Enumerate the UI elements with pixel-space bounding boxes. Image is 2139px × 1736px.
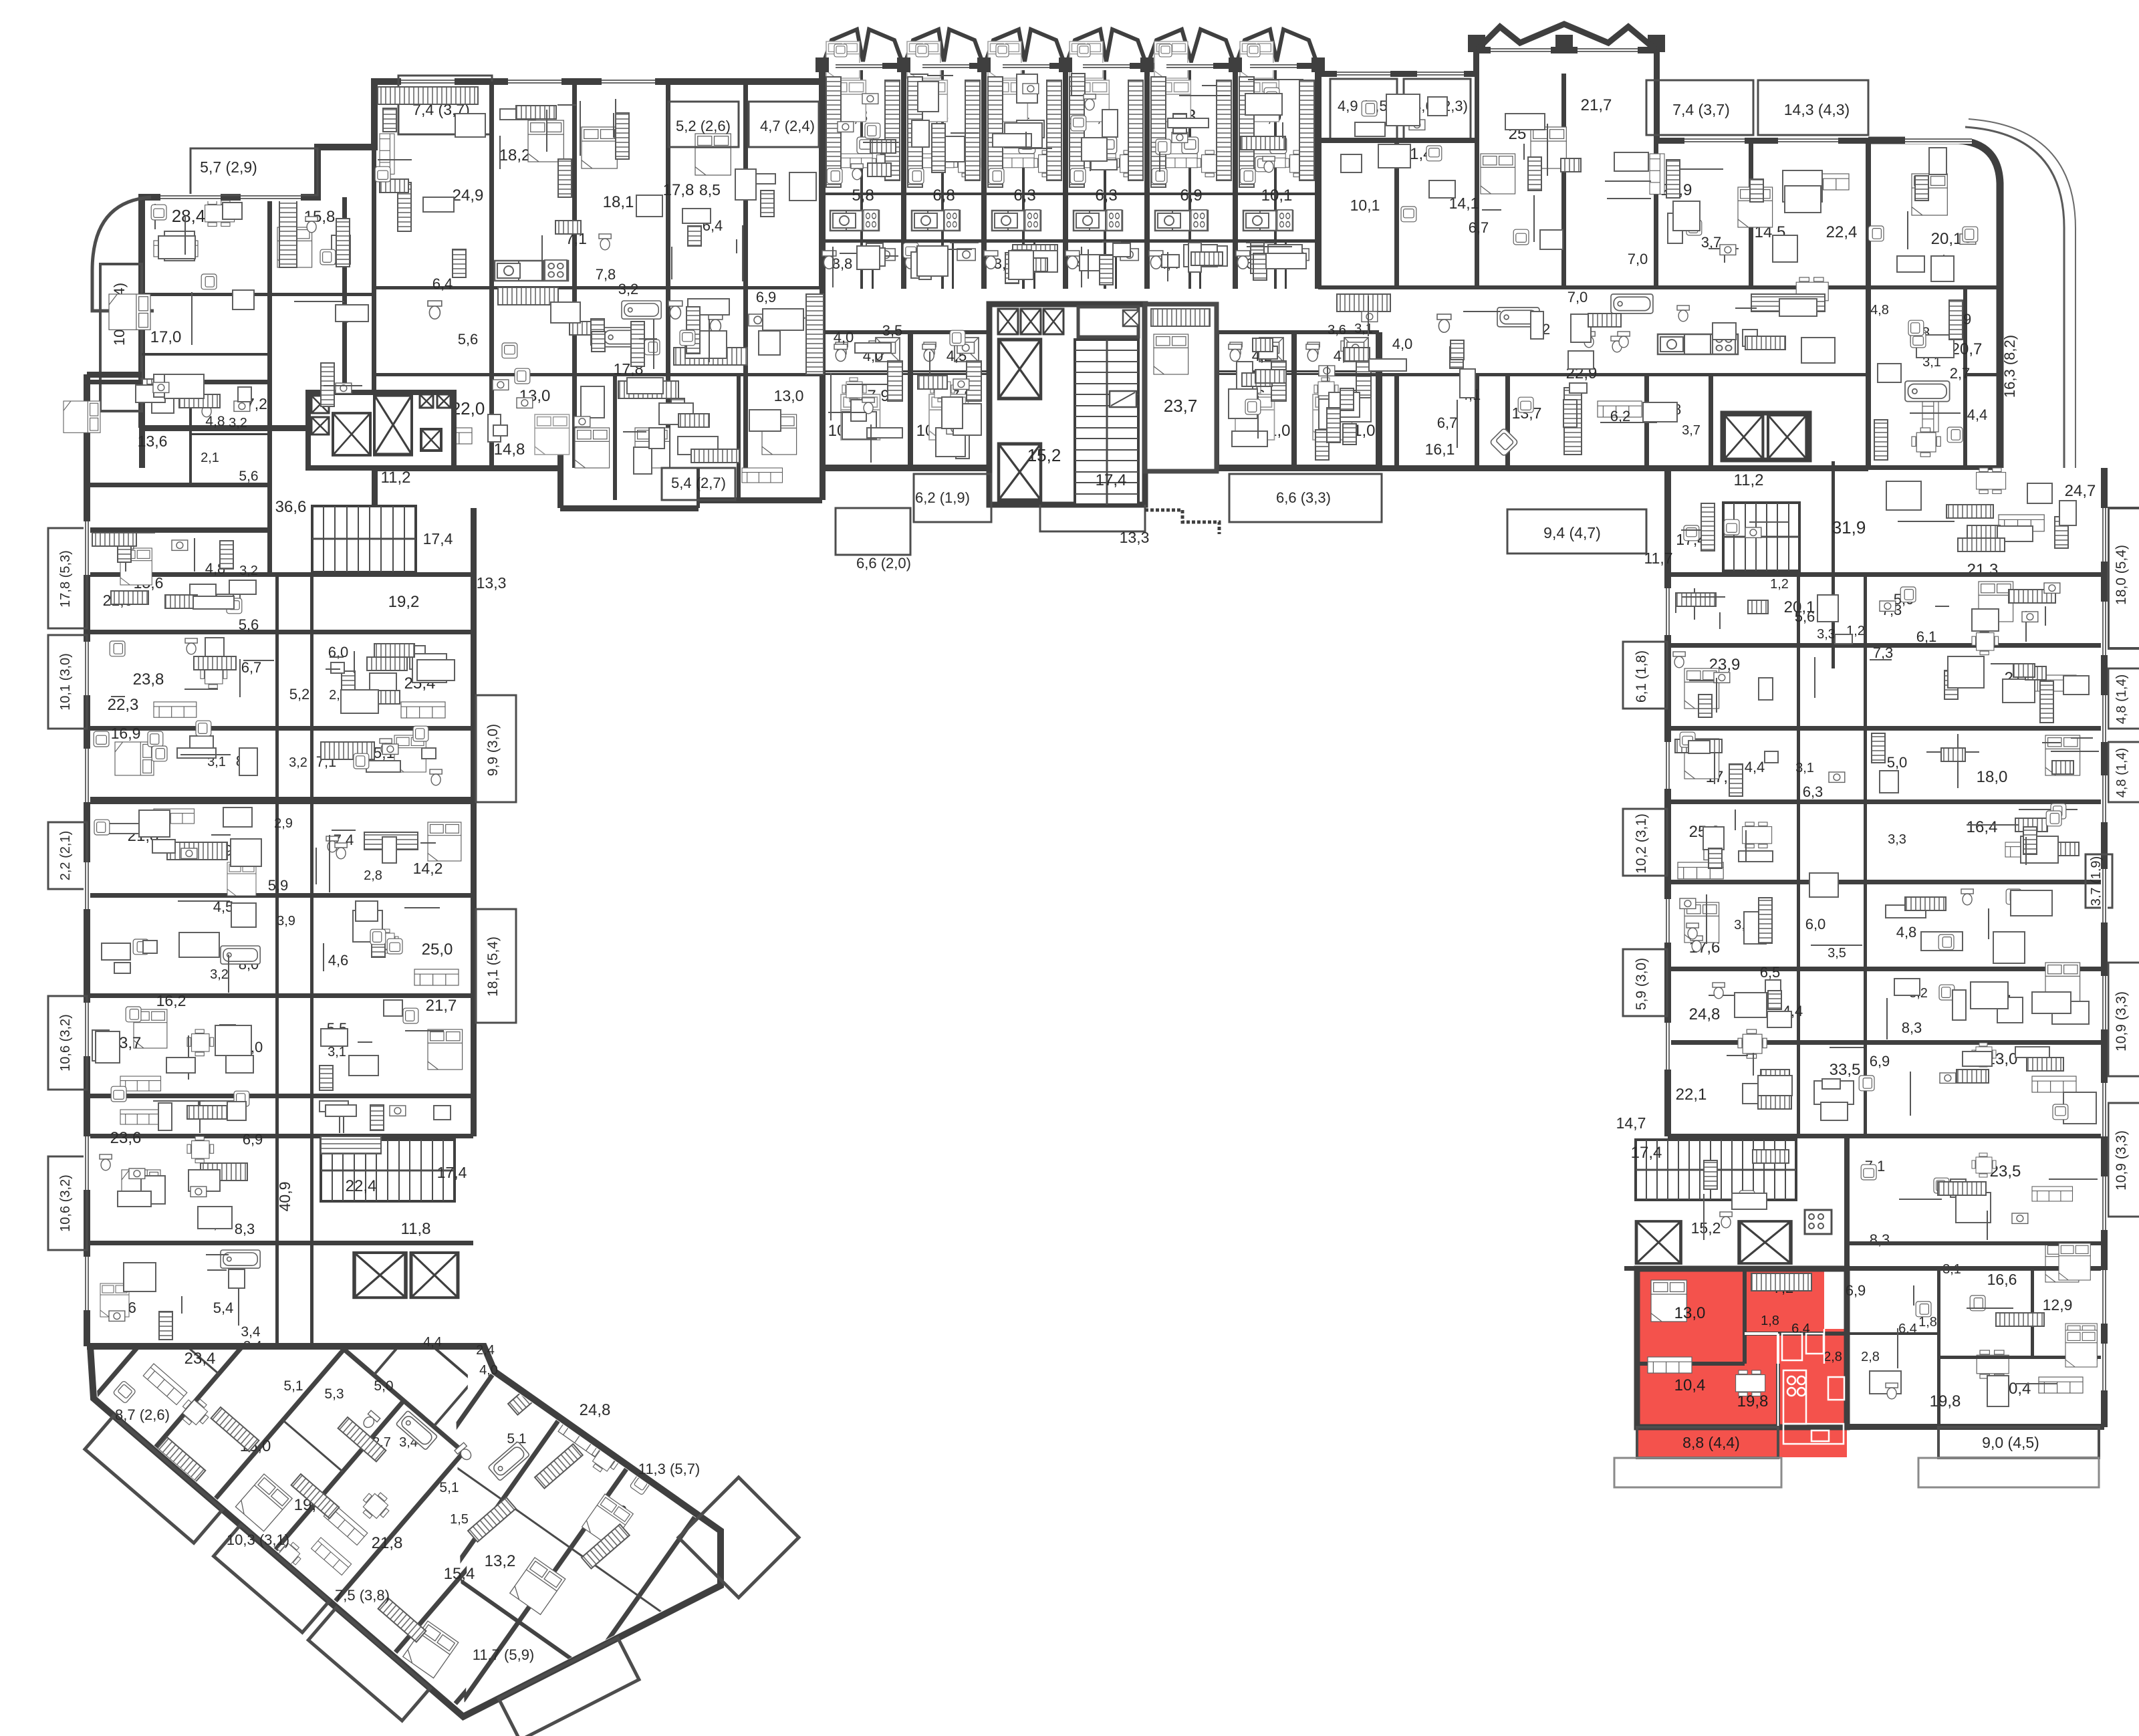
svg-text:16,9: 16,9: [111, 725, 141, 742]
svg-text:3,5: 3,5: [1828, 946, 1846, 961]
svg-text:2,8: 2,8: [364, 868, 382, 883]
svg-text:23,4: 23,4: [184, 1350, 216, 1368]
svg-text:18,1: 18,1: [603, 193, 634, 211]
svg-text:19,2: 19,2: [388, 593, 420, 611]
svg-text:8,3: 8,3: [235, 1221, 255, 1237]
svg-text:4,4: 4,4: [1967, 406, 1988, 423]
svg-text:10,9 (3,3): 10,9 (3,3): [2114, 1130, 2129, 1191]
svg-text:2,4: 2,4: [476, 1343, 495, 1358]
svg-text:3,1: 3,1: [1354, 322, 1373, 336]
svg-text:5,0: 5,0: [1887, 754, 1908, 771]
svg-text:18,0: 18,0: [1977, 768, 2008, 786]
svg-text:6,1 (1,8): 6,1 (1,8): [1634, 650, 1649, 703]
svg-text:19,8: 19,8: [1930, 1392, 1961, 1410]
svg-text:18,0 (5,4): 18,0 (5,4): [2114, 545, 2129, 605]
svg-text:3,7: 3,7: [1682, 423, 1701, 438]
svg-text:16,6: 16,6: [1987, 1271, 2017, 1288]
svg-text:5,9: 5,9: [268, 877, 289, 894]
svg-text:13,3: 13,3: [477, 574, 507, 592]
svg-text:7,5 (3,8): 7,5 (3,8): [335, 1587, 390, 1604]
svg-text:5,7 (2,9): 5,7 (2,9): [200, 158, 257, 176]
svg-text:10,1: 10,1: [1350, 197, 1380, 214]
svg-text:7,0: 7,0: [1628, 251, 1648, 267]
svg-text:24,7: 24,7: [2065, 482, 2096, 500]
svg-text:6,2 (1,9): 6,2 (1,9): [915, 489, 970, 506]
svg-text:6,3: 6,3: [1095, 187, 1117, 205]
svg-text:13,2: 13,2: [485, 1552, 516, 1570]
svg-text:7,0: 7,0: [1567, 289, 1588, 305]
svg-text:10,4: 10,4: [1674, 1376, 1706, 1394]
svg-text:22,1: 22,1: [1676, 1086, 1707, 1104]
svg-text:20,1: 20,1: [1931, 230, 1963, 248]
svg-text:5,4 (2,7): 5,4 (2,7): [671, 475, 726, 491]
svg-text:17,4: 17,4: [1096, 471, 1127, 489]
svg-text:6,1: 6,1: [1916, 628, 1937, 645]
svg-text:23,8: 23,8: [133, 670, 164, 689]
svg-text:28,4: 28,4: [172, 206, 206, 226]
svg-text:9,9 (3,0): 9,9 (3,0): [485, 724, 501, 776]
svg-text:5,4: 5,4: [213, 1299, 234, 1316]
svg-text:4,0: 4,0: [1392, 336, 1413, 352]
svg-text:25,0: 25,0: [422, 941, 453, 959]
svg-text:3,4: 3,4: [241, 1324, 261, 1340]
svg-text:10,1: 10,1: [1261, 187, 1293, 205]
svg-text:6,8: 6,8: [932, 187, 955, 205]
svg-text:1,2: 1,2: [1770, 577, 1789, 592]
svg-text:8,8 (4,4): 8,8 (4,4): [1682, 1434, 1740, 1451]
svg-text:7,8: 7,8: [596, 266, 616, 283]
svg-text:15,4: 15,4: [444, 1565, 475, 1583]
svg-text:3,8: 3,8: [832, 255, 853, 272]
svg-text:4,8: 4,8: [1896, 924, 1917, 941]
svg-text:3,3: 3,3: [1817, 627, 1836, 642]
svg-text:22,4: 22,4: [1826, 223, 1858, 241]
svg-text:4,7 (2,4): 4,7 (2,4): [760, 118, 815, 134]
svg-text:14,8: 14,8: [494, 441, 525, 459]
svg-text:3,2: 3,2: [229, 416, 247, 430]
svg-text:17,8: 17,8: [663, 181, 695, 199]
svg-text:3,2: 3,2: [289, 755, 307, 770]
svg-text:6,0: 6,0: [1805, 916, 1826, 933]
svg-text:17,8 (5,3): 17,8 (5,3): [58, 550, 73, 608]
svg-text:33,5: 33,5: [1830, 1061, 1861, 1079]
svg-text:5,6: 5,6: [239, 616, 259, 633]
svg-text:16,2: 16,2: [156, 992, 186, 1009]
svg-text:1,8: 1,8: [1761, 1314, 1779, 1328]
svg-text:3,9: 3,9: [277, 914, 295, 928]
svg-text:5,9 (3,0): 5,9 (3,0): [1634, 958, 1649, 1010]
svg-text:10,9 (3,3): 10,9 (3,3): [2114, 991, 2129, 1051]
svg-text:3,1: 3,1: [1795, 761, 1814, 775]
svg-text:23,7: 23,7: [1164, 396, 1198, 416]
svg-text:17,4: 17,4: [437, 1164, 467, 1181]
svg-text:5,0: 5,0: [374, 1378, 393, 1394]
svg-text:15,2: 15,2: [1027, 445, 1061, 465]
svg-text:10,6 (3,2): 10,6 (3,2): [58, 1174, 73, 1232]
svg-text:14,2: 14,2: [413, 860, 443, 877]
svg-text:1,5: 1,5: [450, 1512, 469, 1527]
svg-text:17,4: 17,4: [423, 530, 453, 547]
svg-text:6,0: 6,0: [328, 644, 349, 660]
svg-text:5,6: 5,6: [458, 331, 479, 348]
svg-text:4,6: 4,6: [328, 952, 349, 969]
svg-text:11,7 (5,9): 11,7 (5,9): [473, 1646, 535, 1663]
svg-text:20,7: 20,7: [1951, 340, 1983, 358]
svg-text:36,6: 36,6: [275, 498, 307, 516]
svg-text:11,3 (5,7): 11,3 (5,7): [638, 1461, 701, 1477]
svg-text:21,8: 21,8: [372, 1534, 403, 1552]
svg-text:4,8 (1,4): 4,8 (1,4): [2114, 674, 2129, 724]
svg-text:13,3: 13,3: [1120, 529, 1150, 546]
svg-text:5,3: 5,3: [324, 1386, 344, 1402]
svg-text:23,6: 23,6: [110, 1129, 142, 1147]
svg-text:10,6 (3,2): 10,6 (3,2): [58, 1014, 73, 1072]
svg-text:3,2: 3,2: [618, 281, 639, 297]
svg-text:3,2: 3,2: [239, 564, 258, 578]
svg-text:14,7: 14,7: [1616, 1114, 1646, 1132]
svg-text:2,8: 2,8: [1861, 1350, 1880, 1364]
svg-text:4,0: 4,0: [479, 1363, 498, 1378]
svg-text:13,0: 13,0: [774, 387, 804, 404]
svg-text:10,3 (3,1): 10,3 (3,1): [227, 1531, 289, 1548]
svg-text:2,2 (2,1): 2,2 (2,1): [58, 831, 73, 880]
svg-text:6,7: 6,7: [1469, 219, 1489, 236]
svg-text:31,9: 31,9: [1832, 517, 1866, 537]
svg-text:11,7: 11,7: [1644, 549, 1672, 567]
svg-text:8,5: 8,5: [699, 181, 721, 199]
svg-text:24,8: 24,8: [580, 1401, 611, 1419]
svg-text:21,7: 21,7: [1581, 96, 1612, 114]
svg-text:3,6: 3,6: [1328, 323, 1346, 338]
svg-text:6,3: 6,3: [1803, 783, 1823, 800]
svg-text:14,3 (4,3): 14,3 (4,3): [1784, 101, 1850, 118]
svg-text:6,7: 6,7: [1437, 414, 1458, 431]
svg-text:2,8: 2,8: [1823, 1350, 1842, 1364]
svg-text:6,9: 6,9: [756, 289, 777, 305]
svg-text:24,9: 24,9: [453, 187, 484, 205]
svg-text:11,2: 11,2: [381, 469, 411, 487]
svg-text:4,4: 4,4: [423, 1335, 442, 1350]
svg-text:6,3: 6,3: [1013, 187, 1035, 205]
svg-text:5,2: 5,2: [289, 686, 310, 703]
svg-text:40,9: 40,9: [276, 1182, 293, 1212]
svg-text:15,2: 15,2: [1691, 1219, 1721, 1237]
svg-text:5,6: 5,6: [239, 469, 258, 484]
svg-text:16,4: 16,4: [1967, 818, 1998, 836]
svg-text:7,4 (3,7): 7,4 (3,7): [1672, 101, 1730, 118]
svg-text:13,0: 13,0: [1674, 1304, 1706, 1322]
svg-text:6,9: 6,9: [243, 1131, 263, 1148]
svg-text:10,1 (3,0): 10,1 (3,0): [58, 653, 73, 711]
svg-text:9,0 (4,5): 9,0 (4,5): [1982, 1434, 2039, 1451]
svg-text:22,4: 22,4: [346, 1177, 377, 1195]
svg-text:5,2 (2,6): 5,2 (2,6): [676, 118, 731, 134]
svg-text:5,1: 5,1: [439, 1480, 459, 1495]
svg-text:3,5: 3,5: [882, 322, 903, 339]
svg-text:17,0: 17,0: [150, 328, 182, 346]
svg-text:3,3: 3,3: [1888, 832, 1906, 847]
svg-text:6,7: 6,7: [241, 659, 262, 676]
svg-text:11,2: 11,2: [1734, 471, 1764, 489]
svg-text:13,6: 13,6: [138, 432, 168, 450]
svg-text:8,3: 8,3: [1902, 1019, 1922, 1036]
svg-text:3,1: 3,1: [328, 1045, 346, 1060]
svg-text:4,4: 4,4: [1745, 759, 1765, 775]
svg-text:3,2: 3,2: [210, 967, 229, 982]
svg-text:6,6 (2,0): 6,6 (2,0): [856, 555, 911, 572]
svg-text:2,9: 2,9: [274, 816, 293, 831]
svg-text:10,2 (3,1): 10,2 (3,1): [1634, 814, 1649, 874]
svg-text:9,4 (4,7): 9,4 (4,7): [1543, 524, 1601, 541]
svg-text:16,1: 16,1: [1425, 441, 1455, 458]
svg-text:6,4: 6,4: [432, 275, 453, 292]
svg-text:6,9: 6,9: [1846, 1282, 1866, 1299]
svg-text:8,7 (2,6): 8,7 (2,6): [115, 1406, 170, 1423]
svg-text:4,8 (1,4): 4,8 (1,4): [2114, 748, 2129, 797]
svg-text:18,1 (5,4): 18,1 (5,4): [485, 937, 501, 997]
svg-text:18,2: 18,2: [499, 146, 531, 164]
svg-text:11,8: 11,8: [401, 1220, 431, 1238]
svg-text:16,3 (8,2): 16,3 (8,2): [2001, 335, 2018, 398]
svg-text:24,8: 24,8: [1689, 1005, 1721, 1023]
svg-text:2,7: 2,7: [1950, 365, 1971, 382]
svg-text:5,1: 5,1: [283, 1378, 303, 1394]
svg-text:5,6: 5,6: [1795, 608, 1815, 625]
svg-text:5,8: 5,8: [852, 187, 874, 205]
svg-text:6,6 (3,3): 6,6 (3,3): [1276, 489, 1331, 506]
svg-text:6,9: 6,9: [1870, 1053, 1890, 1070]
svg-text:2,1: 2,1: [201, 451, 219, 465]
svg-text:6,5: 6,5: [1760, 964, 1781, 981]
svg-text:12,9: 12,9: [2043, 1296, 2073, 1314]
svg-text:22,3: 22,3: [108, 696, 139, 714]
svg-text:4,0: 4,0: [834, 329, 854, 346]
svg-text:8,3: 8,3: [1870, 1231, 1890, 1248]
svg-text:17,4: 17,4: [1631, 1144, 1662, 1162]
svg-text:21,7: 21,7: [426, 997, 457, 1015]
svg-text:4,8: 4,8: [1870, 303, 1889, 318]
svg-text:6,9: 6,9: [1180, 187, 1202, 205]
